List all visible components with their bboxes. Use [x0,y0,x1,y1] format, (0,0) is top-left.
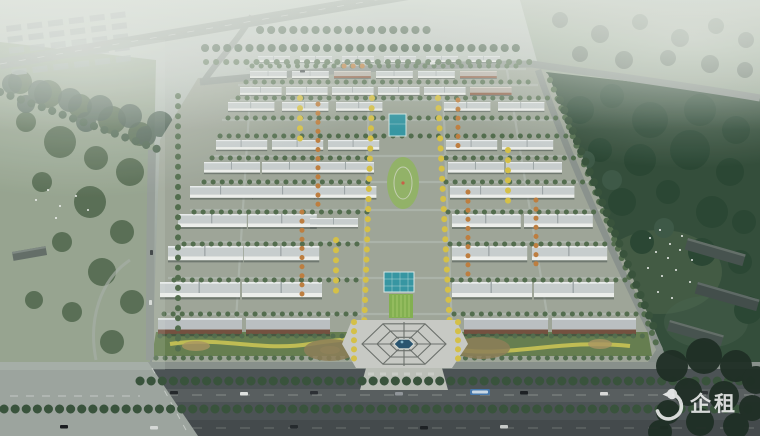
watermark-text: 企租 [689,392,738,416]
aerial-masterplan-rendering: 企租 [0,0,760,436]
rendering-canvas: 企租 [0,0,760,436]
atmospheric-haze [0,0,760,436]
